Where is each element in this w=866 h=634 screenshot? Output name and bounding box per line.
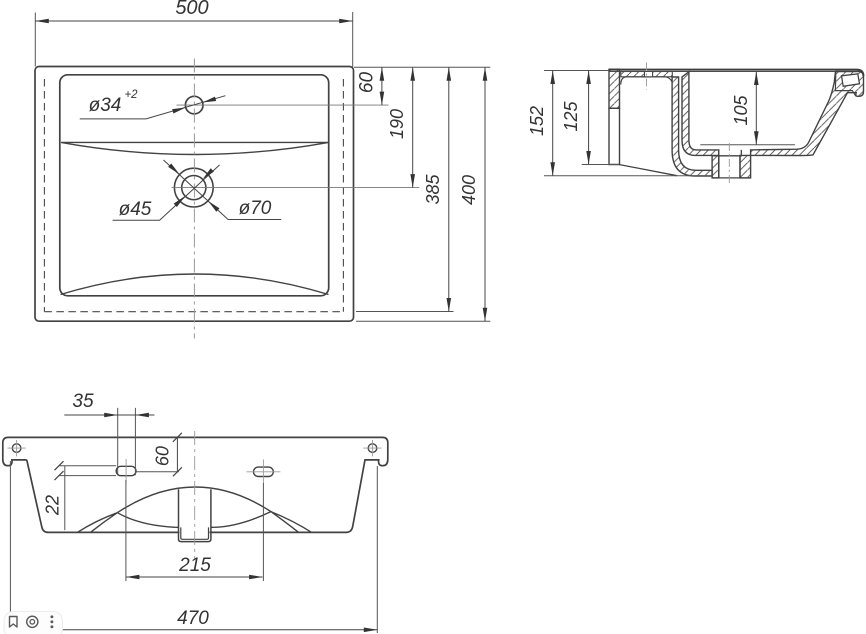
svg-text:35: 35: [72, 391, 94, 412]
svg-text:190: 190: [387, 109, 407, 139]
svg-text:470: 470: [177, 608, 209, 629]
svg-text:60: 60: [357, 72, 378, 94]
svg-text:400: 400: [459, 175, 479, 205]
svg-text:ø70: ø70: [239, 198, 272, 219]
svg-text:215: 215: [178, 555, 211, 576]
svg-text:22: 22: [43, 495, 63, 516]
svg-text:60: 60: [153, 446, 173, 466]
svg-text:+2: +2: [124, 89, 138, 101]
svg-text:125: 125: [561, 101, 581, 132]
svg-text:385: 385: [423, 174, 443, 205]
svg-text:ø45: ø45: [119, 199, 152, 220]
svg-text:152: 152: [527, 106, 547, 136]
svg-text:500: 500: [175, 0, 208, 19]
svg-text:105: 105: [731, 95, 751, 126]
svg-text:ø34: ø34: [89, 95, 122, 116]
